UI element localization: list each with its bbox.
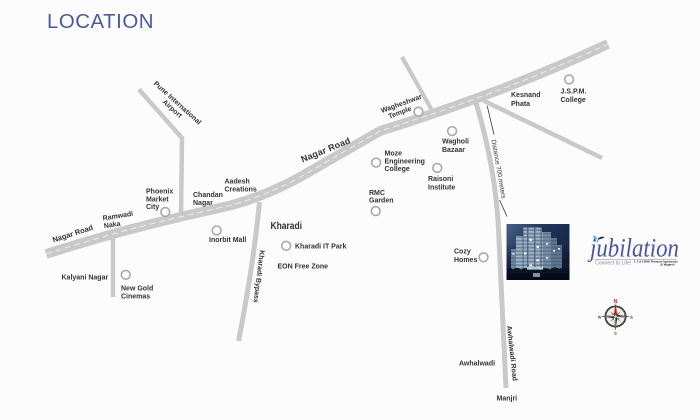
svg-text:J.S.P.M.College: J.S.P.M.College [561, 89, 587, 104]
svg-text:Manjri: Manjri [497, 396, 518, 403]
svg-text:Kalyani Nagar: Kalyani Nagar [62, 275, 109, 282]
svg-text:W: W [598, 315, 602, 320]
svg-text:N: N [614, 299, 618, 305]
svg-text:New GoldCinemas: New GoldCinemas [121, 286, 153, 301]
svg-text:Kharadi IT Park: Kharadi IT Park [295, 244, 346, 251]
svg-text:Kharadi: Kharadi [271, 221, 303, 232]
svg-text:Awhalwadi: Awhalwadi [459, 361, 495, 368]
svg-text:LOCATION: LOCATION [47, 11, 154, 33]
svg-text:S: S [614, 331, 617, 336]
svg-text:jubilation: jubilation [587, 234, 679, 263]
svg-text:E: E [630, 315, 633, 320]
svg-text:EON Free Zone: EON Free Zone [278, 264, 329, 271]
svg-text:Connect to Life!: Connect to Life! [595, 260, 631, 266]
svg-text:RaisoniInstitute: RaisoniInstitute [428, 176, 455, 191]
svg-text:WagholiBazaar: WagholiBazaar [442, 139, 469, 154]
svg-text:Inorbit Mall: Inorbit Mall [209, 237, 246, 244]
svg-text:@ Wagholi: @ Wagholi [660, 263, 674, 267]
